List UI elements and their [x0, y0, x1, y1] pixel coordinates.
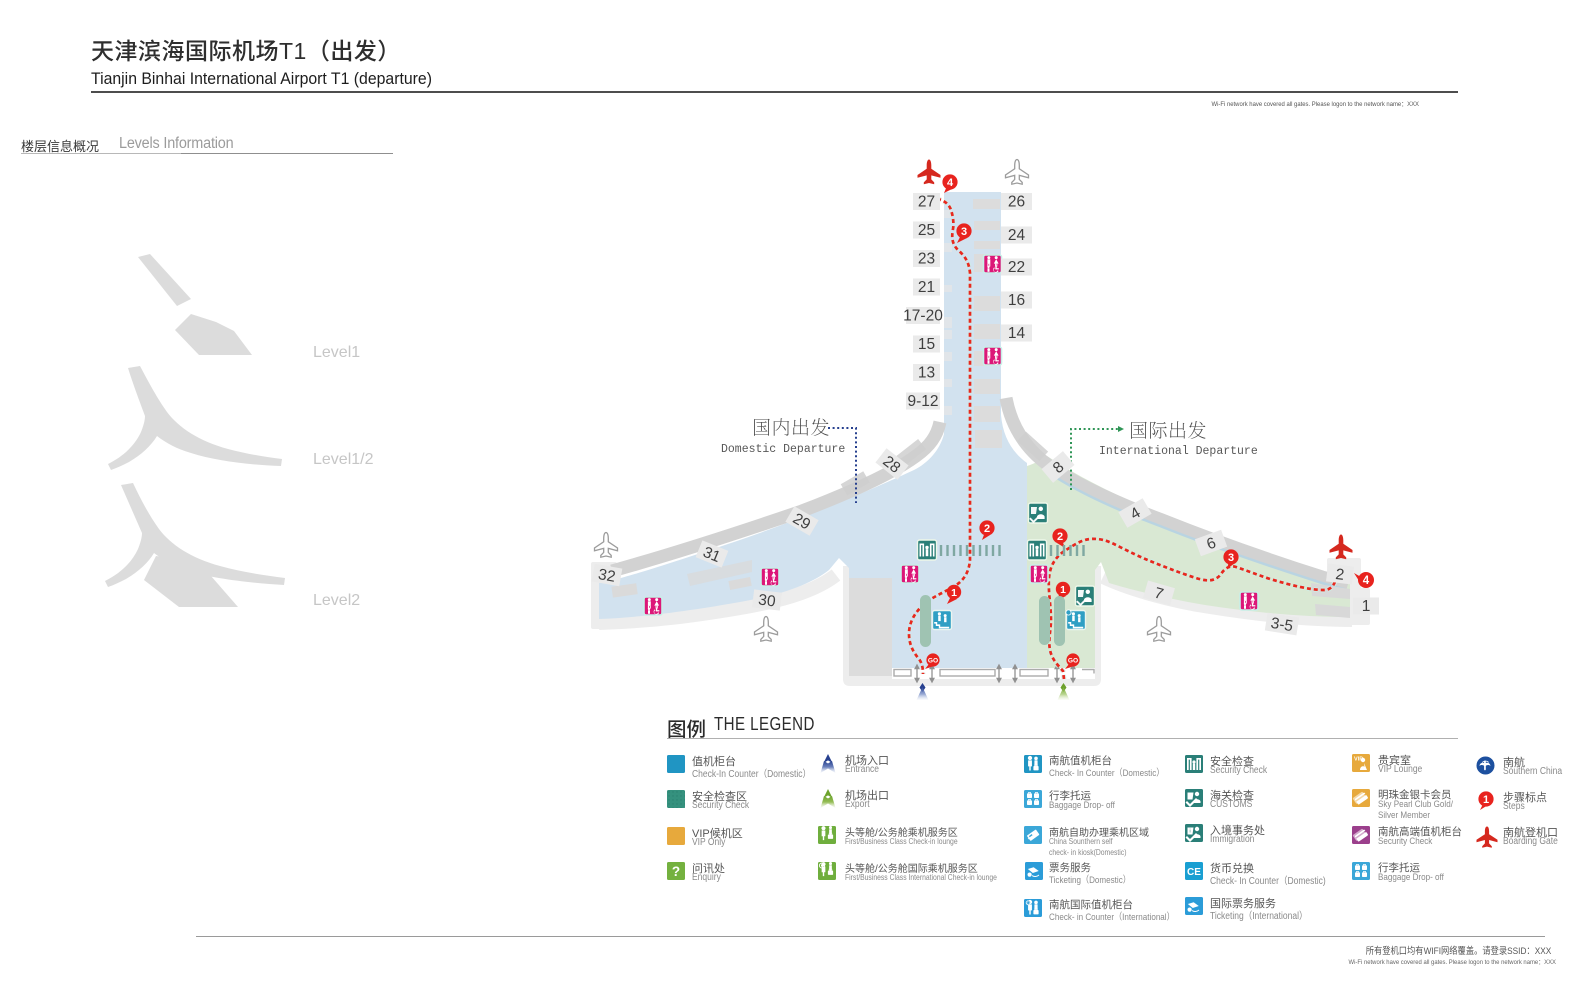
svg-text:?: ?: [672, 864, 680, 879]
svg-text:Level1: Level1: [313, 344, 360, 361]
svg-text:CE: CE: [1187, 867, 1201, 878]
svg-text:22: 22: [1008, 255, 1025, 277]
svg-text:2: 2: [1057, 531, 1063, 543]
svg-text:15: 15: [918, 332, 935, 354]
svg-text:国内出发: 国内出发: [752, 413, 830, 440]
svg-text:21: 21: [918, 275, 935, 297]
svg-text:2: 2: [984, 523, 990, 535]
svg-text:27: 27: [918, 190, 935, 212]
svg-text:16: 16: [1008, 288, 1025, 310]
svg-text:Domestic Departure: Domestic Departure: [721, 443, 845, 456]
svg-text:1: 1: [1362, 594, 1371, 616]
svg-text:23: 23: [918, 247, 935, 269]
svg-text:25: 25: [918, 218, 935, 240]
svg-text:GO: GO: [1068, 658, 1078, 665]
svg-text:Level1/2: Level1/2: [313, 451, 374, 468]
svg-text:4: 4: [947, 177, 954, 189]
svg-text:9-12: 9-12: [907, 389, 938, 411]
svg-text:24: 24: [1008, 223, 1026, 245]
svg-text:17-20: 17-20: [903, 304, 943, 326]
svg-text:1: 1: [1060, 584, 1066, 596]
svg-text:1: 1: [1483, 794, 1489, 806]
svg-text:4: 4: [1363, 575, 1370, 587]
svg-text:30: 30: [757, 588, 777, 612]
svg-text:3-5: 3-5: [1269, 611, 1295, 636]
svg-text:GO: GO: [928, 658, 938, 665]
svg-text:13: 13: [918, 361, 935, 383]
svg-text:26: 26: [1008, 190, 1025, 212]
svg-text:International Departure: International Departure: [1099, 445, 1258, 458]
svg-text:Level2: Level2: [313, 592, 360, 609]
svg-text:3: 3: [961, 226, 967, 238]
svg-text:14: 14: [1008, 321, 1026, 343]
svg-text:国际出发: 国际出发: [1129, 416, 1207, 443]
svg-text:1: 1: [951, 587, 957, 599]
svg-text:3: 3: [1228, 552, 1234, 564]
svg-text:i: i: [1190, 829, 1191, 835]
